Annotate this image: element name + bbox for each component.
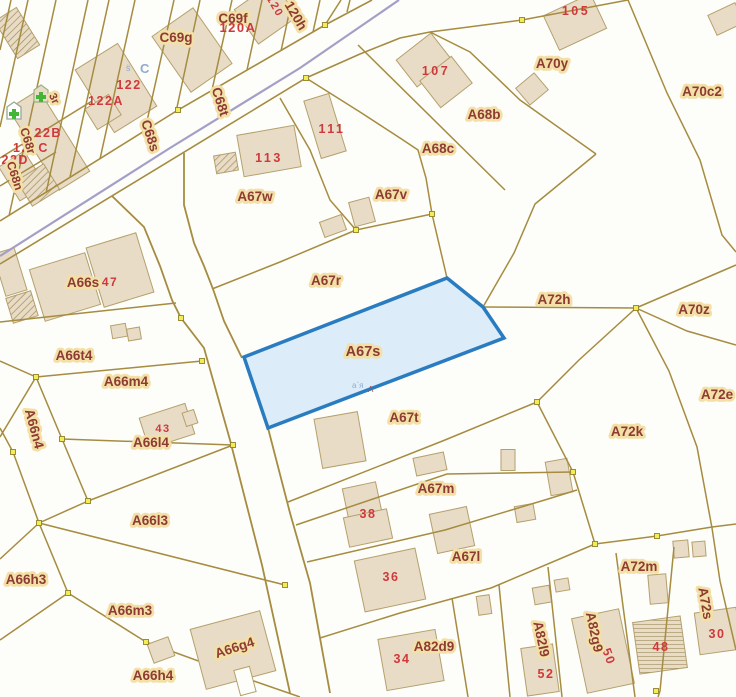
svg-text:122A: 122A	[88, 94, 124, 108]
svg-text:43: 43	[155, 423, 170, 435]
svg-text:A66h3: A66h3	[6, 572, 47, 587]
svg-text:A67s: A67s	[346, 344, 381, 360]
svg-text:A67v: A67v	[375, 187, 408, 202]
svg-text:122: 122	[116, 78, 141, 92]
svg-text:a`я: a`я	[352, 381, 363, 390]
svg-text:120A: 120A	[219, 20, 256, 35]
svg-text:A70c2: A70c2	[682, 84, 722, 99]
svg-text:30: 30	[709, 627, 726, 641]
svg-text:A68c: A68c	[422, 141, 455, 156]
svg-text:A67m: A67m	[418, 481, 455, 496]
svg-text:A70z: A70z	[678, 302, 710, 317]
svg-text:105: 105	[562, 4, 590, 18]
svg-text:A72h: A72h	[537, 292, 570, 307]
svg-text:s̈: s̈	[126, 63, 131, 73]
svg-text:A82d9: A82d9	[414, 639, 455, 654]
svg-text:A72e: A72e	[701, 387, 734, 402]
svg-text:A67r: A67r	[311, 273, 342, 288]
svg-text:A66s: A66s	[67, 275, 99, 290]
svg-text:111: 111	[319, 122, 346, 136]
svg-text:A: A	[368, 385, 374, 394]
svg-text:A66l4: A66l4	[133, 435, 170, 450]
svg-text:113: 113	[255, 151, 283, 165]
svg-text:A72k: A72k	[611, 424, 644, 439]
svg-text:38: 38	[360, 507, 377, 521]
svg-text:A72m: A72m	[621, 559, 658, 574]
svg-text:A66m3: A66m3	[108, 603, 153, 618]
svg-text:34: 34	[394, 652, 411, 666]
svg-text:A66l3: A66l3	[132, 513, 169, 528]
svg-text:A67t: A67t	[389, 410, 419, 425]
svg-text:48: 48	[653, 640, 670, 654]
svg-text:A66h4: A66h4	[133, 668, 174, 683]
svg-text:A70y: A70y	[536, 56, 569, 71]
svg-text:A66m4: A66m4	[104, 374, 149, 389]
svg-text:A67w: A67w	[237, 189, 273, 204]
svg-text:A66t4: A66t4	[56, 348, 93, 363]
svg-text:36: 36	[383, 570, 400, 584]
svg-text:107: 107	[422, 64, 450, 78]
svg-text:A67l: A67l	[452, 549, 481, 564]
svg-text:52: 52	[538, 667, 555, 681]
svg-text:C69g: C69g	[159, 30, 192, 45]
svg-text:A68b: A68b	[467, 107, 500, 122]
svg-text:C: C	[140, 61, 150, 76]
svg-text:47: 47	[102, 275, 118, 289]
